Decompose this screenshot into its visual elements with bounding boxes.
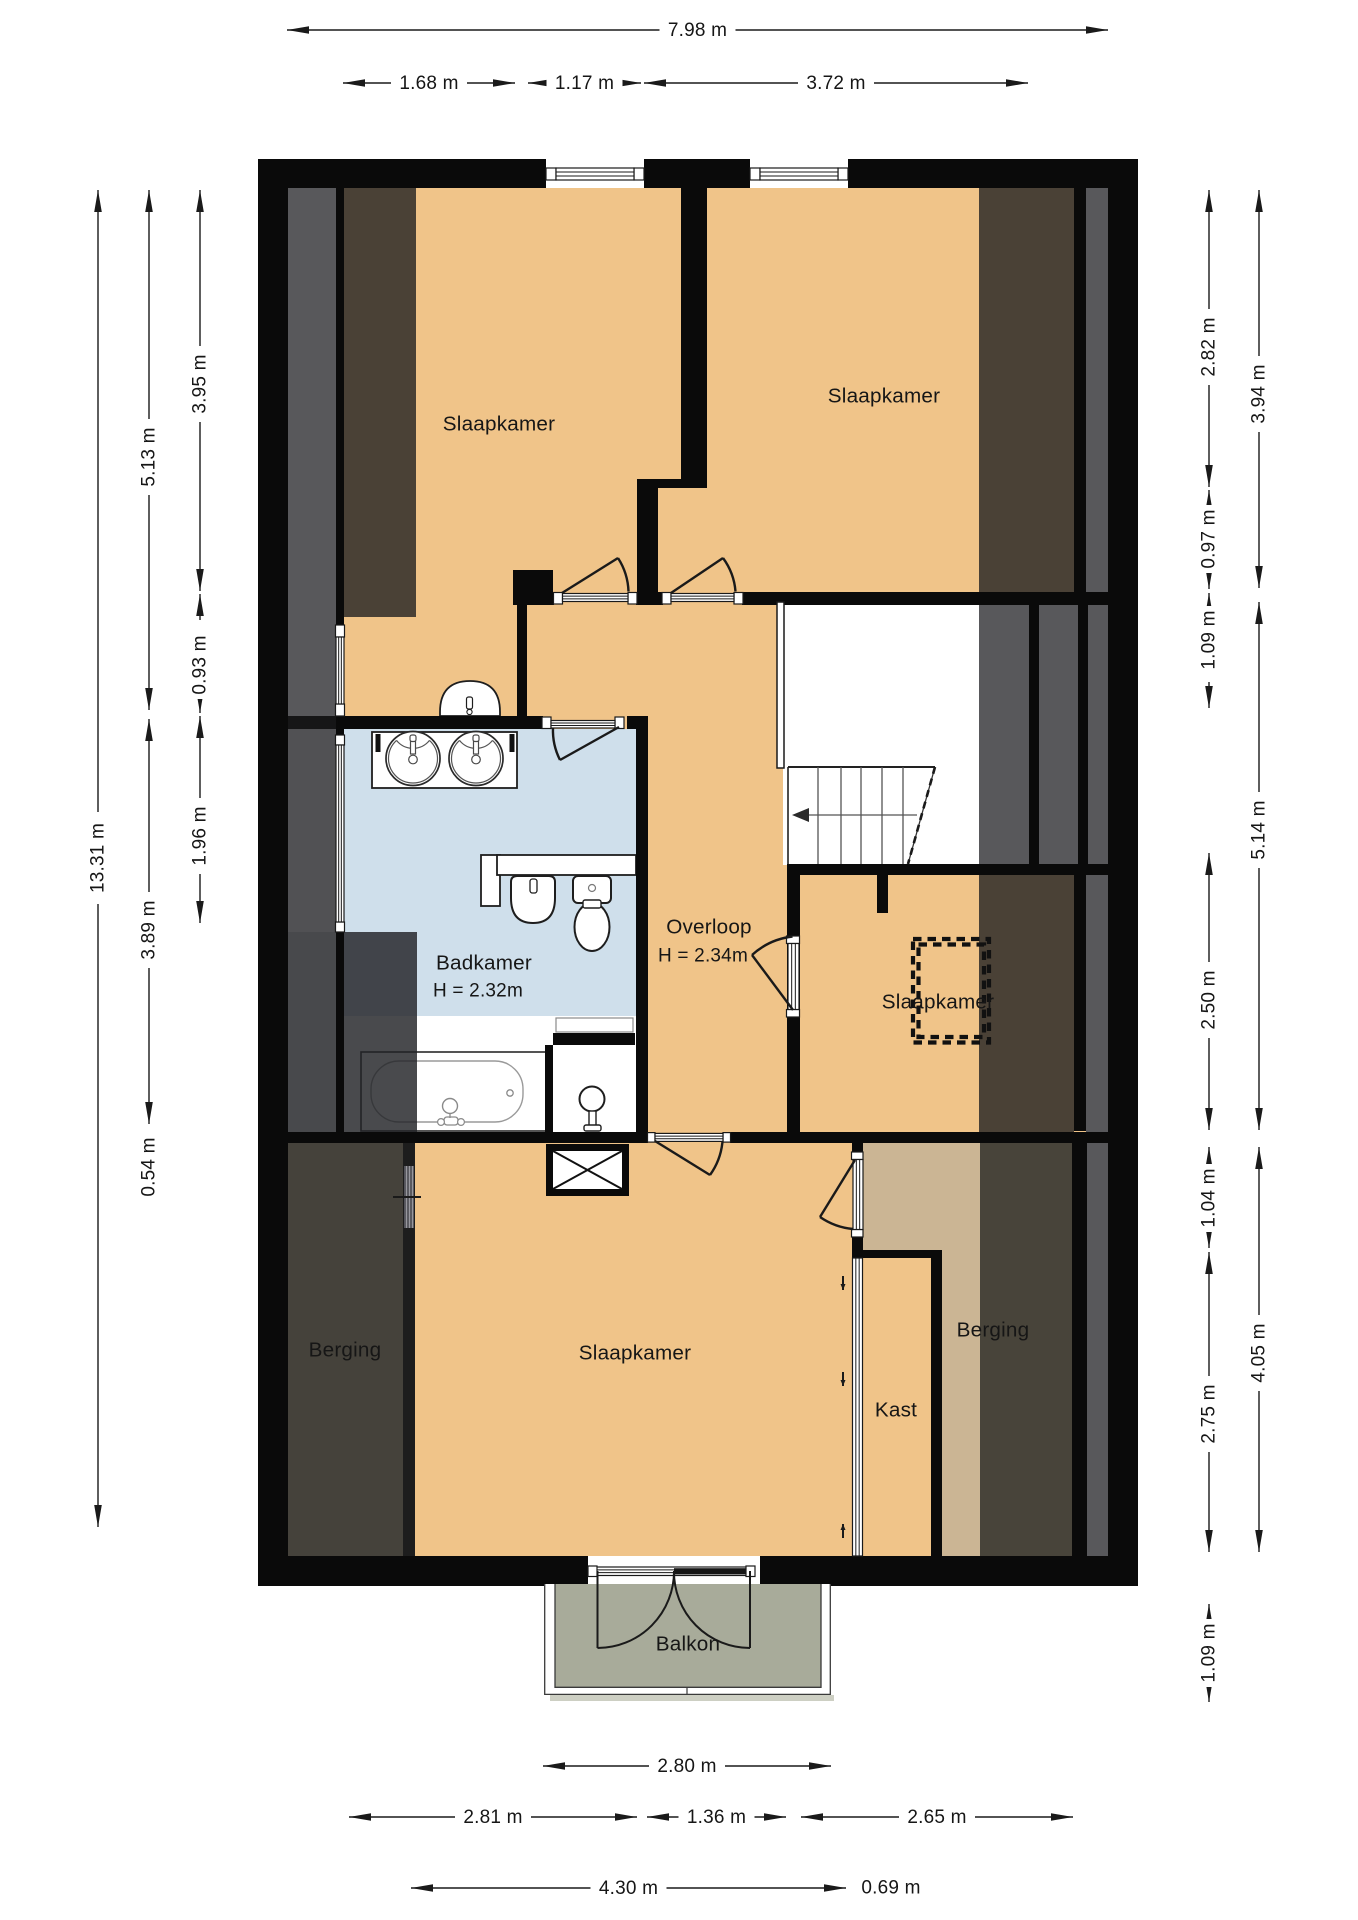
svg-text:Kast: Kast: [875, 1399, 917, 1422]
svg-text:5.14 m: 5.14 m: [1249, 800, 1270, 859]
svg-text:1.09 m: 1.09 m: [1199, 610, 1220, 669]
svg-text:3.94 m: 3.94 m: [1249, 364, 1270, 423]
svg-text:1.68 m: 1.68 m: [399, 73, 458, 94]
svg-text:3.72 m: 3.72 m: [806, 73, 865, 94]
svg-text:13.31 m: 13.31 m: [88, 823, 109, 893]
svg-text:1.04 m: 1.04 m: [1199, 1168, 1220, 1227]
svg-text:Slaapkamer: Slaapkamer: [882, 991, 994, 1014]
svg-text:Berging: Berging: [957, 1319, 1030, 1342]
svg-text:Slaapkamer: Slaapkamer: [828, 385, 940, 408]
svg-text:H = 2.32m: H = 2.32m: [433, 981, 523, 1002]
svg-text:0.54 m: 0.54 m: [139, 1137, 160, 1196]
svg-text:0.93 m: 0.93 m: [190, 635, 211, 694]
svg-text:1.96 m: 1.96 m: [190, 806, 211, 865]
svg-text:2.80 m: 2.80 m: [657, 1756, 716, 1777]
svg-text:2.75 m: 2.75 m: [1199, 1384, 1220, 1443]
svg-text:2.82 m: 2.82 m: [1199, 317, 1220, 376]
svg-text:3.95 m: 3.95 m: [190, 354, 211, 413]
svg-text:Slaapkamer: Slaapkamer: [579, 1342, 691, 1365]
svg-text:H = 2.34m: H = 2.34m: [658, 946, 748, 967]
svg-text:2.81 m: 2.81 m: [463, 1807, 522, 1828]
svg-text:3.89 m: 3.89 m: [139, 900, 160, 959]
svg-text:Overloop: Overloop: [666, 916, 752, 939]
svg-text:0.69 m: 0.69 m: [861, 1878, 920, 1899]
svg-text:2.50 m: 2.50 m: [1199, 970, 1220, 1029]
svg-text:1.09 m: 1.09 m: [1199, 1623, 1220, 1682]
svg-text:4.05 m: 4.05 m: [1249, 1323, 1270, 1382]
svg-text:1.36 m: 1.36 m: [687, 1807, 746, 1828]
svg-text:Balkon: Balkon: [656, 1633, 720, 1656]
svg-text:1.17 m: 1.17 m: [555, 73, 614, 94]
svg-text:0.97 m: 0.97 m: [1199, 509, 1220, 568]
svg-text:Slaapkamer: Slaapkamer: [443, 413, 555, 436]
svg-text:Badkamer: Badkamer: [436, 952, 532, 975]
svg-text:5.13 m: 5.13 m: [139, 427, 160, 486]
svg-text:7.98 m: 7.98 m: [668, 20, 727, 41]
svg-text:4.30 m: 4.30 m: [599, 1878, 658, 1899]
svg-text:2.65 m: 2.65 m: [907, 1807, 966, 1828]
svg-text:Berging: Berging: [309, 1339, 382, 1362]
